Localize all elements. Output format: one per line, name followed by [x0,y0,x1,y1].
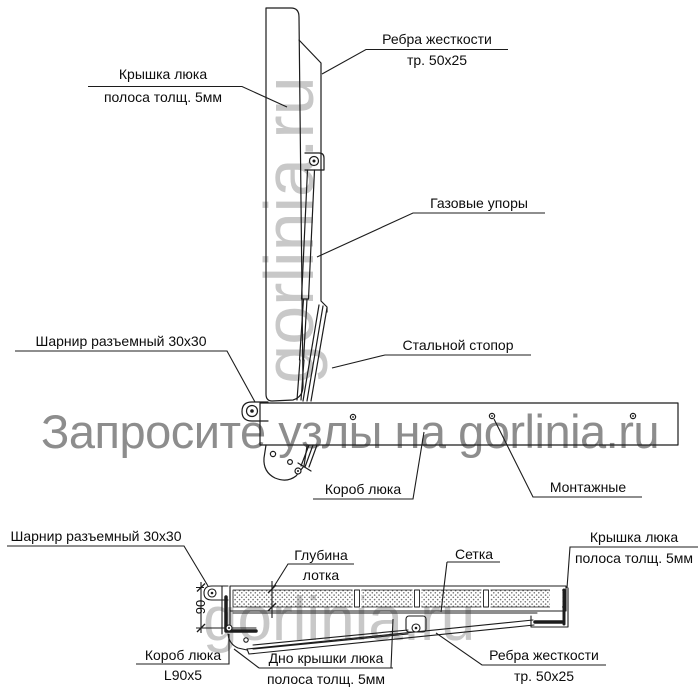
lower-bracket [264,445,307,480]
mesh-band [233,590,563,607]
dimension-90-text: 90 [193,593,207,621]
label-sec-hinge: Шарнир разъемный 30x30 [0,528,192,546]
label-ribs-line2: тр. 50x25 [377,52,497,70]
side-view-drawing [242,8,678,480]
label-cover-line2: полоса толщ. 5мм [73,89,253,107]
label-steel-stopper: Стальной стопор [388,337,528,355]
label-box: Короб люка [303,481,423,499]
mounting-holes [350,413,635,419]
cover-panel [266,8,303,401]
label-sec-box-line2: L90x5 [123,667,243,685]
label-sec-ribs-line1: Ребра жесткости [474,647,614,665]
technical-drawing-canvas: gorlinia.ru gorlinia.ru Запросите узлы н… [0,0,700,700]
label-hinge: Шарнир разъемный 30x30 [21,333,221,351]
steel-stopper [303,305,327,401]
gas-strut [297,170,315,400]
label-mesh: Сетка [424,546,524,564]
section-view-drawing [204,586,568,654]
label-depth-line2: лотка [271,567,371,585]
label-bottom-line1: Дно крышки люка [256,650,396,668]
label-bottom-line2: полоса толщ. 5мм [236,671,416,689]
label-gas-struts: Газовые упоры [409,195,549,213]
label-cover-line1: Крышка люка [93,66,233,84]
side-view-leaders [15,50,642,500]
hatch-box [260,403,678,445]
label-sec-cover-line1: Крышка люка [564,529,700,547]
label-mounting: Монтажные [528,479,648,497]
stopper-foot [298,445,317,471]
label-sec-ribs-line2: тр. 50x25 [484,668,604,686]
label-ribs-line1: Ребра жесткости [367,31,507,49]
label-depth-line1: Глубина [271,547,371,565]
label-sec-box-line1: Короб люка [123,647,243,665]
label-sec-cover-line2: полоса толщ. 5мм [544,550,700,568]
